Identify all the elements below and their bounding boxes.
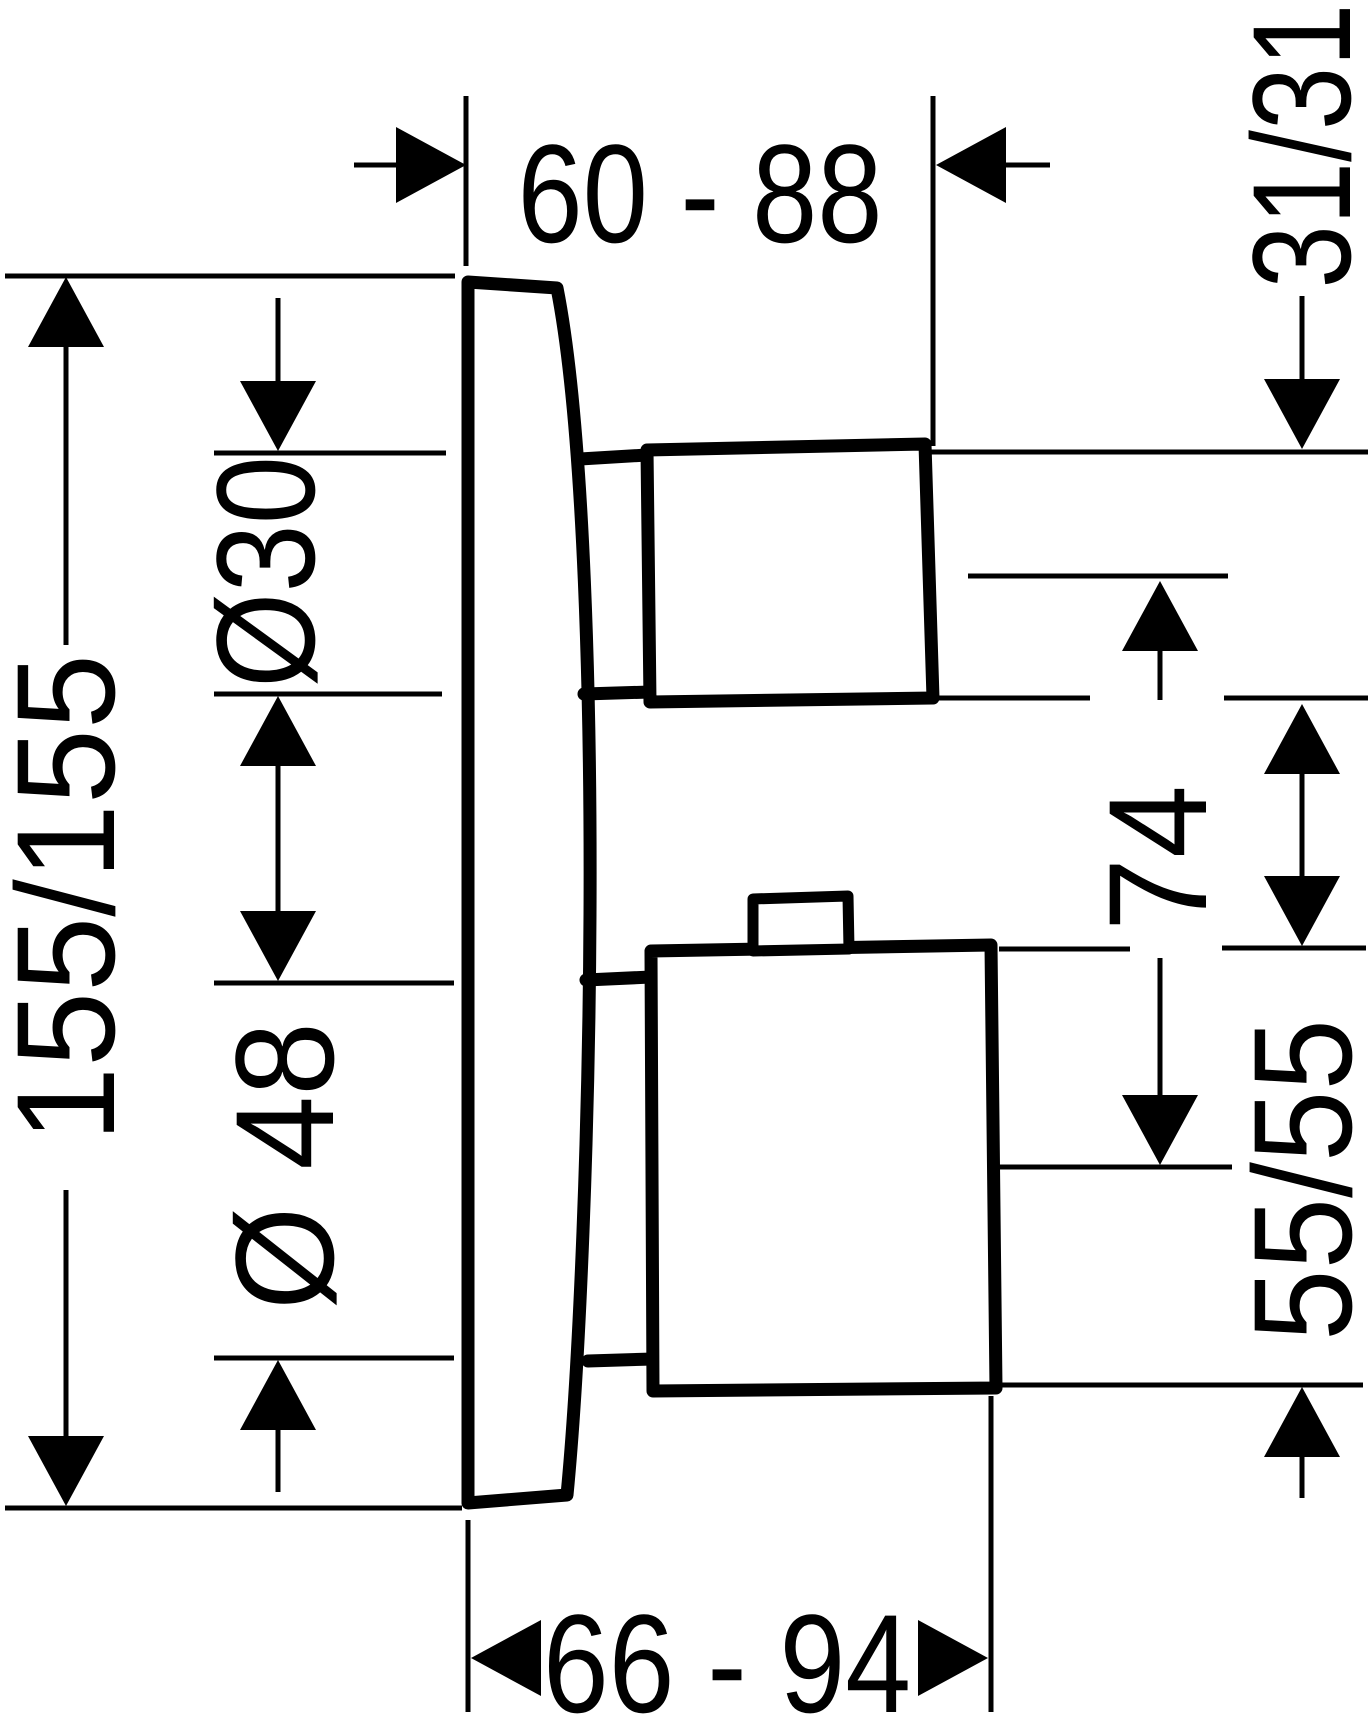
dimension-handle-center-distance: 74 <box>1079 581 1236 1165</box>
dimension-top-depth: 60 - 88 <box>354 115 1050 272</box>
dimension-bottom-depth: 66 - 94 <box>471 1585 988 1728</box>
arrow-up-icon <box>240 696 316 766</box>
arrow-left-icon <box>936 127 1006 203</box>
arrow-up-icon <box>1264 704 1340 774</box>
bottom-depth-label: 66 - 94 <box>543 1585 911 1728</box>
plate-square-label: 155/155 <box>0 654 144 1142</box>
technical-drawing-page: 155/155 Ø30 Ø 48 60 - 88 31/31 <box>0 0 1370 1728</box>
arrow-down-icon <box>240 381 316 451</box>
fixture-side-view <box>468 282 996 1503</box>
lower-sleeve-diameter-label: Ø 48 <box>206 1022 363 1310</box>
thermostat-dimension-drawing: 155/155 Ø30 Ø 48 60 - 88 31/31 <box>0 0 1370 1728</box>
dimension-lower-sleeve: Ø 48 <box>206 1022 363 1492</box>
lower-handle-square-label: 55/55 <box>1224 1019 1370 1341</box>
arrow-down-icon <box>240 911 316 981</box>
arrow-down-icon <box>1264 876 1340 946</box>
arrow-up-icon <box>28 277 104 347</box>
safety-stop-button <box>753 896 849 951</box>
dimension-upper-sleeve: Ø30 <box>187 298 344 981</box>
arrow-right-icon <box>918 1620 988 1696</box>
top-depth-label: 60 - 88 <box>518 115 883 272</box>
dimension-upper-handle-square: 31/31 <box>1223 4 1370 947</box>
handle-center-distance-label: 74 <box>1079 785 1236 931</box>
lower-handle <box>651 945 996 1391</box>
arrow-down-icon <box>1122 1095 1198 1165</box>
dimension-lower-handle-square: 55/55 <box>1224 1019 1370 1498</box>
upper-sleeve-diameter-label: Ø30 <box>187 456 344 688</box>
lower-handle-sleeve <box>586 977 653 1361</box>
arrow-right-icon <box>396 127 466 203</box>
arrow-down-icon <box>1264 379 1340 449</box>
arrow-up-icon <box>240 1360 316 1430</box>
wall-plate <box>468 282 590 1503</box>
upper-handle <box>647 444 933 702</box>
arrow-left-icon <box>471 1620 541 1696</box>
arrow-up-icon <box>1264 1387 1340 1457</box>
arrow-down-icon <box>28 1436 104 1506</box>
upper-handle-square-label: 31/31 <box>1223 4 1370 289</box>
lower-handle-top-extension-line <box>999 948 1366 949</box>
dimension-plate-square: 155/155 <box>0 277 144 1506</box>
arrow-up-icon <box>1122 581 1198 651</box>
